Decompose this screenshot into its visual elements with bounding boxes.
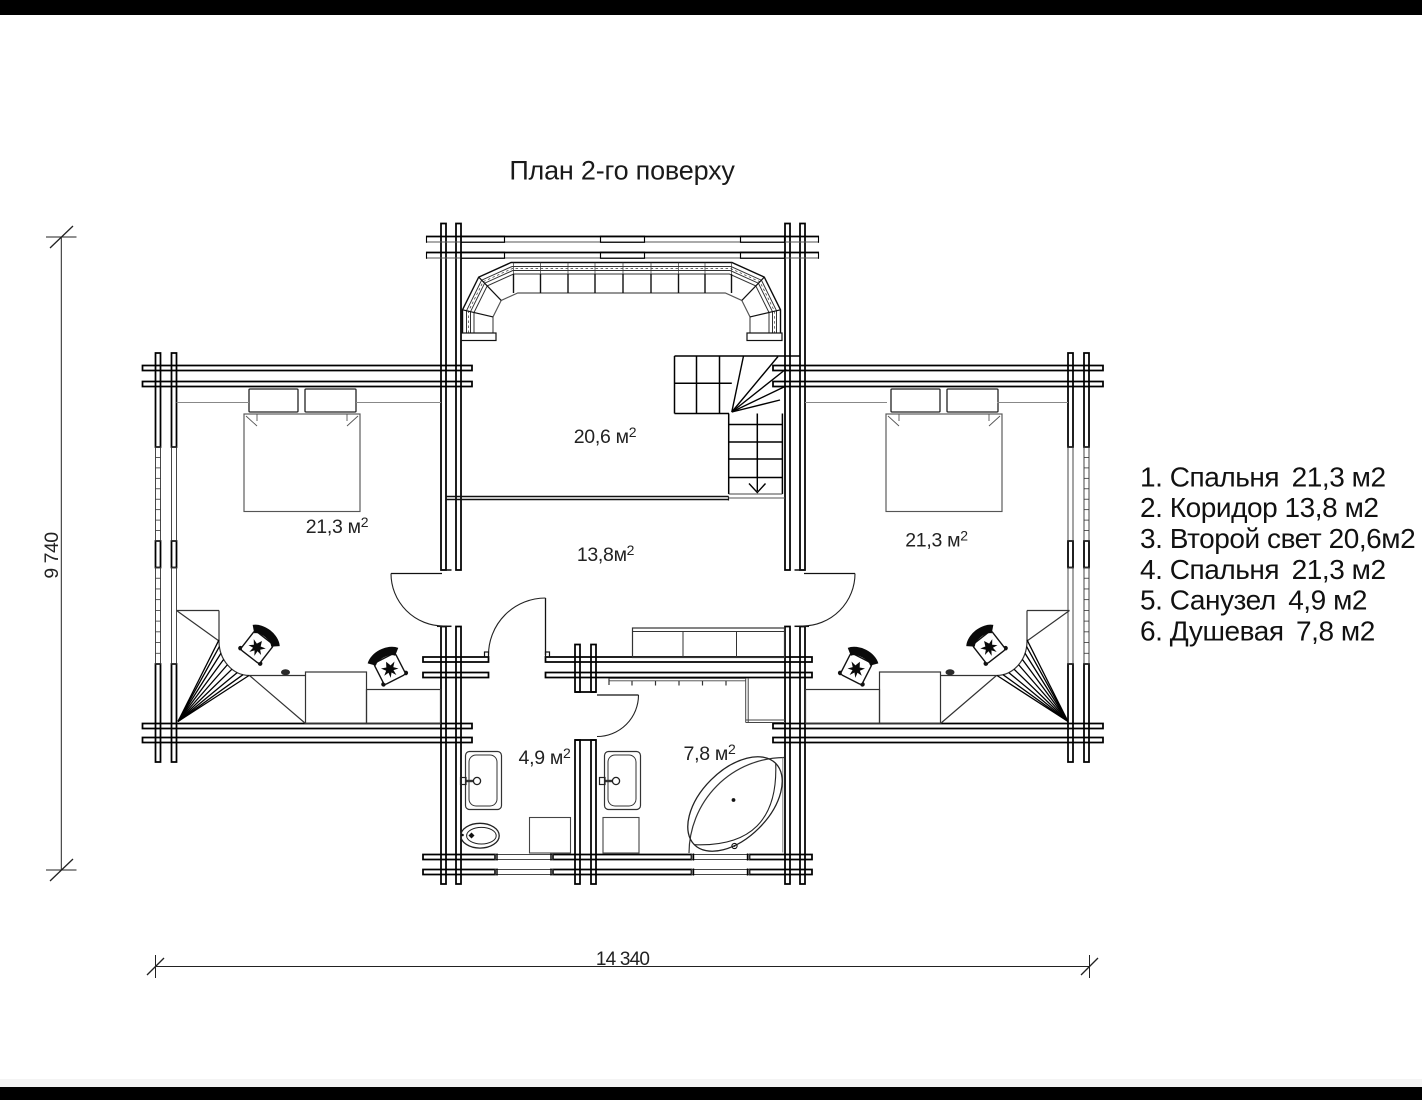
svg-text:21,3 м2: 21,3 м2 <box>905 528 968 552</box>
svg-text:3. Второй свет 20,6м2: 3. Второй свет 20,6м2 <box>1140 523 1415 554</box>
svg-text:2. Коридор 13,8 м2: 2. Коридор 13,8 м2 <box>1140 492 1379 523</box>
svg-text:9 740: 9 740 <box>41 532 63 579</box>
svg-text:20,6 м2: 20,6 м2 <box>574 424 637 448</box>
svg-text:13,8м2: 13,8м2 <box>577 542 635 566</box>
svg-text:План 2-го поверху: План 2-го поверху <box>509 156 735 186</box>
svg-text:4. Спальня 21,3 м2: 4. Спальня 21,3 м2 <box>1140 554 1386 585</box>
svg-text:6. Душевая 7,8 м2: 6. Душевая 7,8 м2 <box>1140 615 1375 646</box>
svg-text:14 340: 14 340 <box>596 949 650 970</box>
svg-text:21,3 м2: 21,3 м2 <box>306 514 369 538</box>
svg-text:1. Спальня 21,3 м2: 1. Спальня 21,3 м2 <box>1140 461 1386 492</box>
svg-text:5. Санузел 4,9 м2: 5. Санузел 4,9 м2 <box>1140 585 1367 616</box>
